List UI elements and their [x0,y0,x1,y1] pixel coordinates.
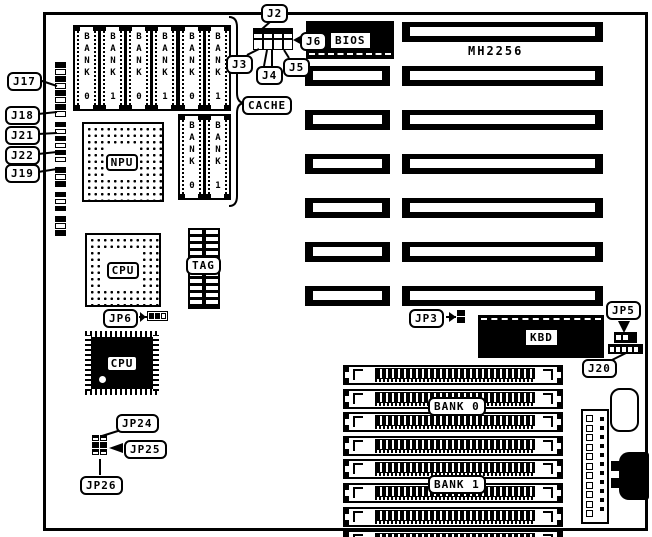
keyboard-din-connector [619,452,649,500]
j2-jumper-block [253,28,293,50]
din-tab [611,478,620,488]
jp3-label: JP3 [409,309,444,328]
isa-slots-long [402,22,603,306]
isa-slot-segment [402,154,603,174]
cache-socket-label: BANK 1 [160,32,169,104]
cache-label: CACHE [242,96,292,115]
jp6-jumper [147,311,168,321]
power-connector [581,409,609,524]
simm-bank1-label: BANK 1 [428,475,486,494]
left-pin-headers [55,62,66,241]
isa-slot-segment [305,286,390,306]
cache-socket: BANK 0 [178,25,205,111]
isa-slot-segment [305,110,390,130]
j20-label: J20 [582,359,617,378]
cache-socket: BANK 1 [204,114,231,200]
simm-slot [343,530,563,537]
cpu-qfp-label: CPU [106,355,139,372]
tag-label: TAG [186,256,221,275]
cache-socket-label: BANK 0 [187,121,196,193]
j22-label: J22 [5,146,40,165]
isa-slot-segment [305,154,390,174]
jp26-label: JP26 [80,476,123,495]
isa-slot-segment [402,286,603,306]
j6-label: J6 [300,32,327,51]
cache-socket-label: BANK 1 [108,32,117,104]
cache-socket: BANK 1 [151,25,178,111]
j4-label: J4 [256,66,283,85]
kbd-label: KBD [524,328,559,347]
simm-slot [343,507,563,527]
cpu-socket-label: CPU [107,262,140,279]
j19-label: J19 [5,164,40,183]
j17-label: J17 [7,72,42,91]
isa-slot-segment [305,66,390,86]
cache-socket-label: BANK 0 [187,32,196,104]
bios-label: BIOS [329,31,372,50]
cache-socket: BANK 1 [99,25,126,111]
jp24-label: JP24 [116,414,159,433]
isa-slot-segment [402,66,603,86]
simm-slots [343,365,563,537]
j18-label: J18 [5,106,40,125]
isa-slot-segment [402,22,603,42]
cpu-socket: CPU [85,233,161,307]
j21-label: J21 [5,126,40,145]
npu-label: NPU [106,154,139,171]
cache-socket: BANK 0 [125,25,152,111]
jp3-jumper [457,310,465,323]
motherboard-diagram: BANK 0 BANK 1 BANK 0 BANK 1 BANK 0 BANK … [0,0,652,537]
din-tab [611,461,620,471]
simm-slot [343,436,563,456]
component-outline [610,388,639,432]
simm-bank0-label: BANK 0 [428,397,486,416]
isa-slot-segment [402,242,603,262]
cache-socket-label: BANK 0 [82,32,91,104]
cache-socket-label: BANK 0 [134,32,143,104]
npu-socket: NPU [82,122,164,202]
cpu-qfp-chip: CPU [85,331,159,395]
isa-slot-segment [305,242,390,262]
jp25-label: JP25 [124,440,167,459]
cache-socket-label: BANK 1 [213,32,222,104]
j3-label: J3 [226,55,253,74]
isa-slots-short [305,66,390,306]
isa-slot-segment [305,198,390,218]
cache-socket: BANK 0 [178,114,205,200]
j5-label: J5 [283,58,310,77]
simm-slot [343,365,563,385]
cache-socket: BANK 0 [73,25,100,111]
j20-header [608,344,643,354]
jp6-label: JP6 [103,309,138,328]
jp24-jumper-block [92,435,107,456]
jp5-label: JP5 [606,301,641,320]
j2-label: J2 [261,4,288,23]
cache-socket-label: BANK 1 [213,121,222,193]
isa-slot-segment [402,198,603,218]
isa-slot-segment [402,110,603,130]
pin1-dot [99,376,106,383]
jp5-jumper [614,332,637,343]
